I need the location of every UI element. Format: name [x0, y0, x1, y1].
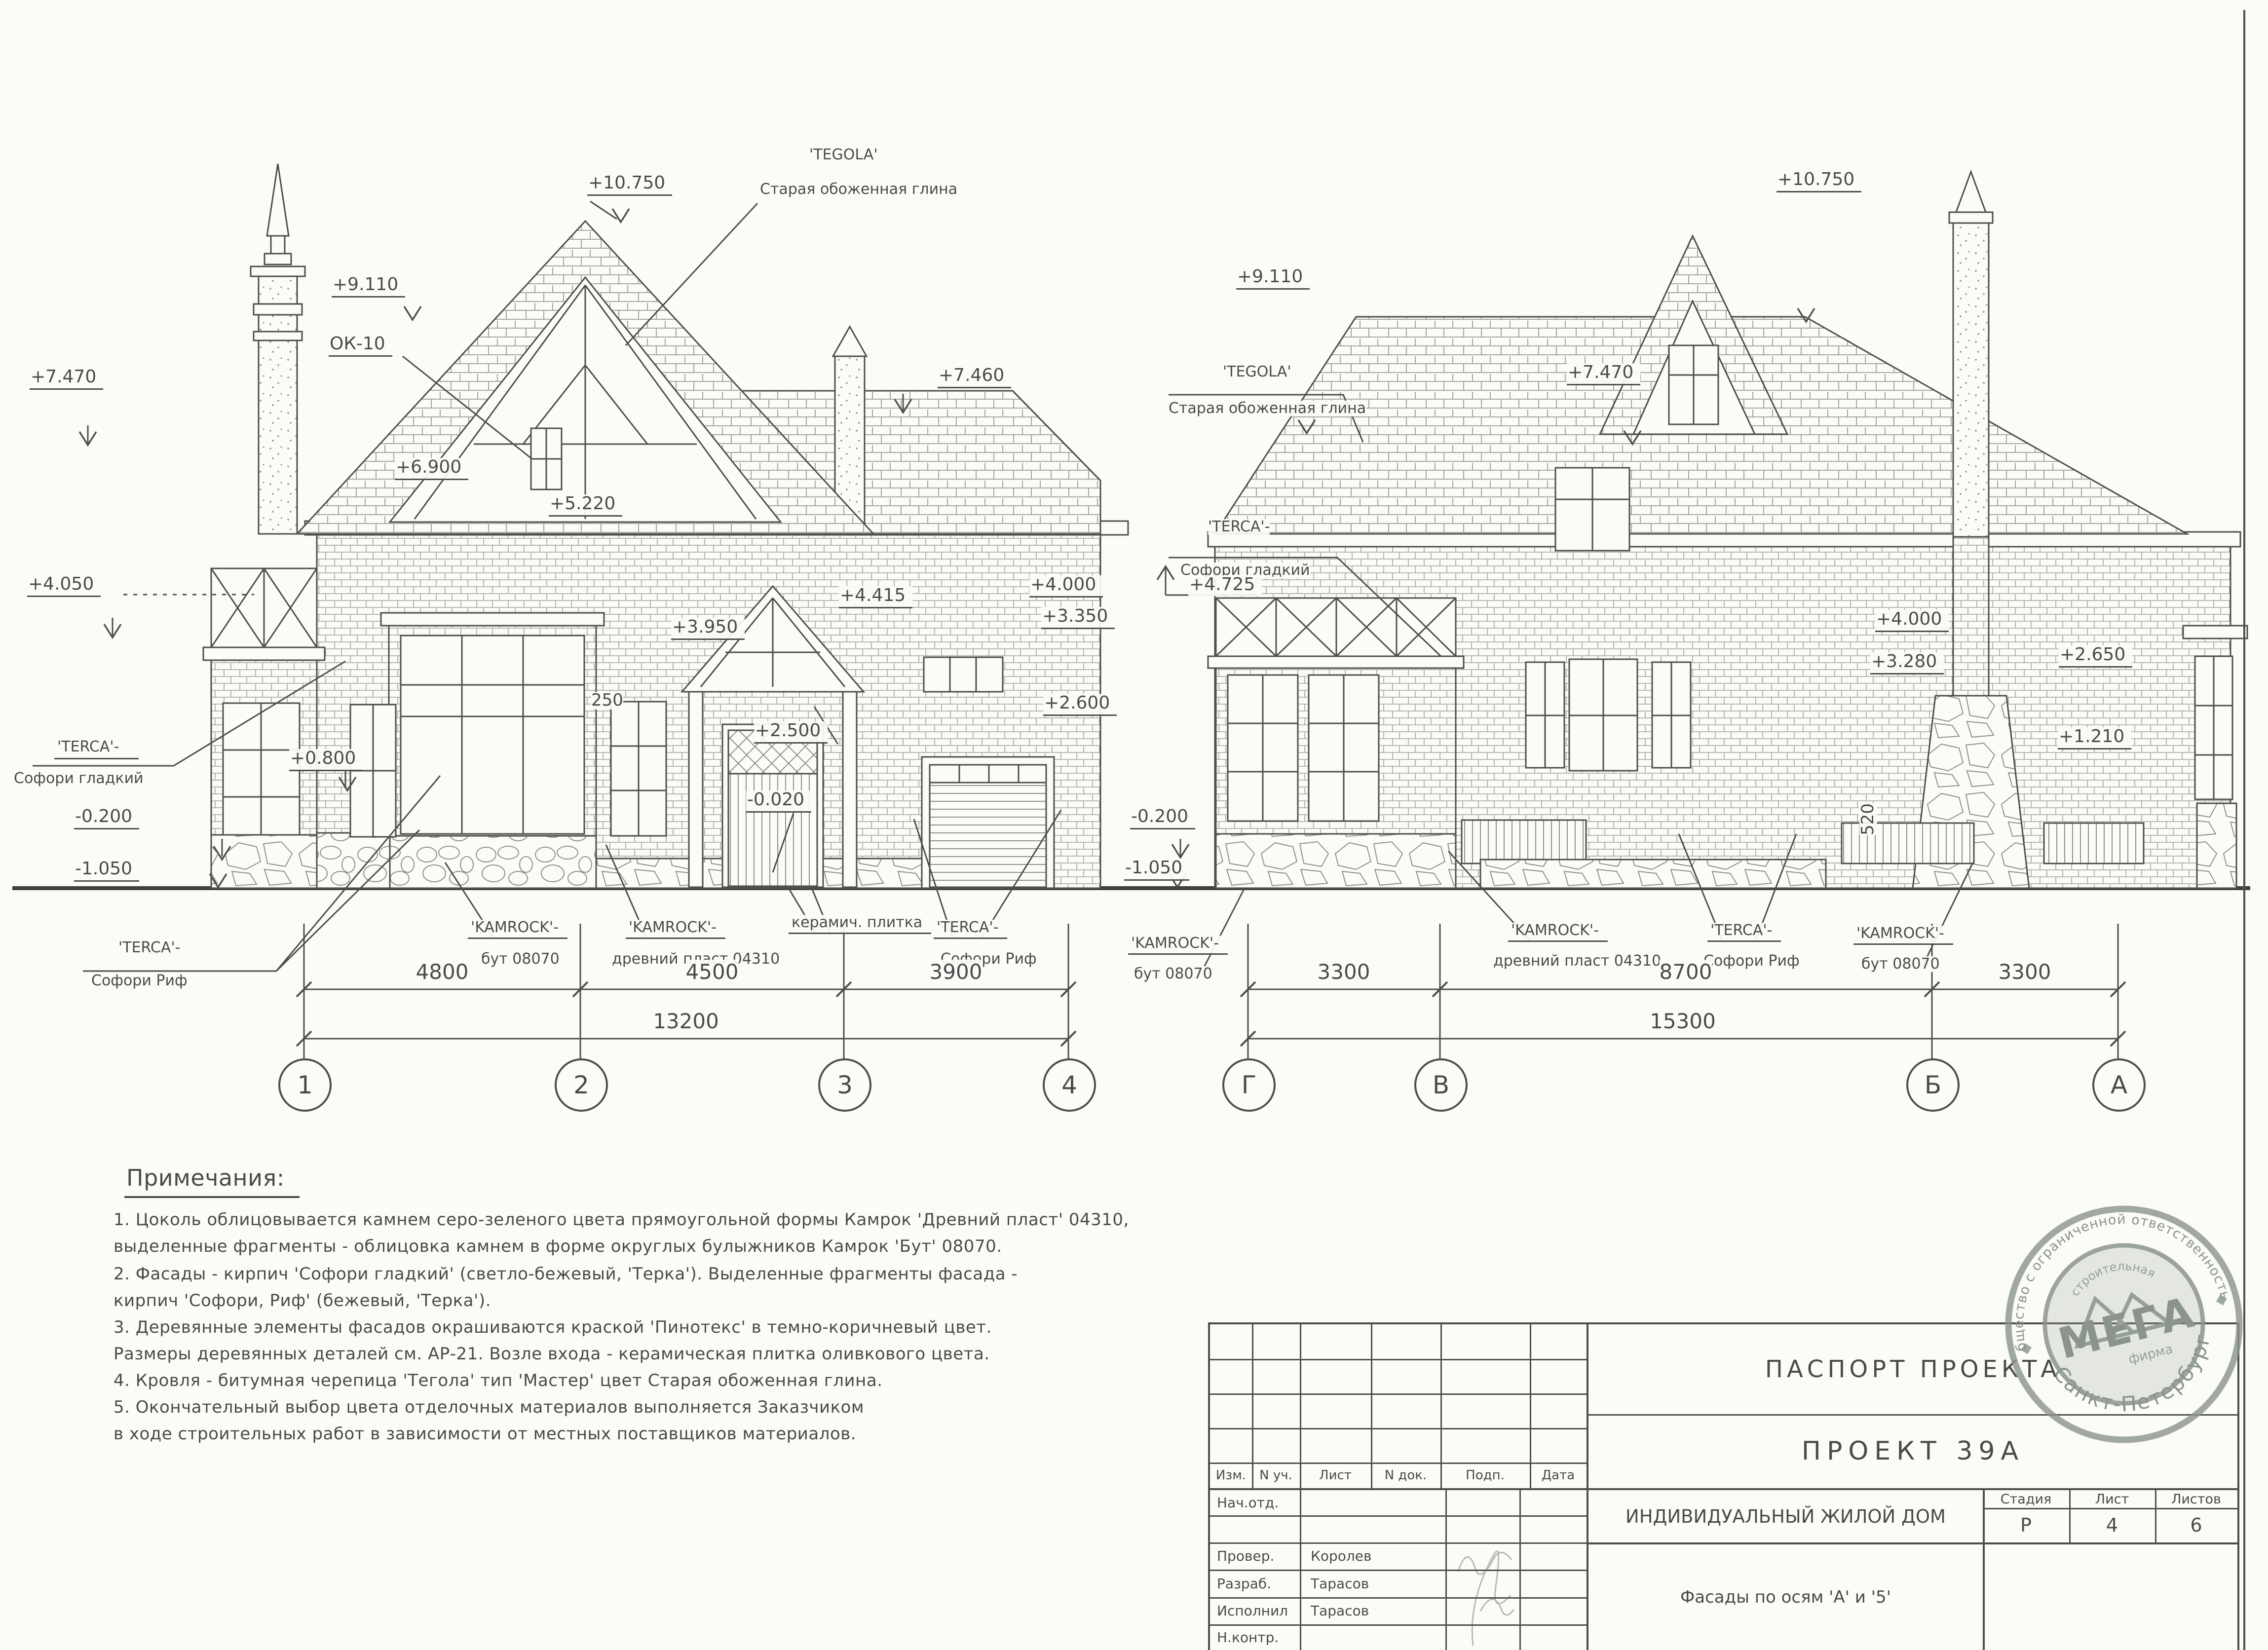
elev-mark: +7.470 [1567, 363, 1640, 385]
callout-kamrock: 'KAMROCK'- [1508, 923, 1608, 942]
elev-mark: +2.650 [2059, 645, 2132, 668]
callout-kamrock-line2: бут 08070 [1861, 956, 1940, 972]
axis-bubble: 1 [278, 1058, 332, 1112]
elev-mark: +10.750 [1777, 170, 1861, 192]
elev-mark: +9.110 [332, 275, 405, 298]
tb-sheets-label: Листов [2155, 1490, 2237, 1508]
elev-mark: -0.200 [1130, 807, 1195, 829]
tb-object: ИНДИВИДУАЛЬНЫЙ ЖИЛОЙ ДОМ [1588, 1490, 1983, 1542]
elev-mark: -1.050 [74, 860, 139, 882]
callout-ceramic-tile: керамич. плитка [789, 915, 931, 934]
elev-mark: +6.900 [395, 458, 468, 480]
note-line: 1. Цоколь облицовывается камнем серо-зел… [113, 1210, 1129, 1230]
callout-kamrock-line2: бут 08070 [481, 951, 560, 967]
elev-mark: -0.200 [74, 807, 139, 829]
note-line: 5. Окончательный выбор цвета отделочных … [113, 1397, 864, 1417]
note-line: Размеры деревянных деталей см. АР-21. Во… [113, 1344, 990, 1364]
callout-kamrock-line2: древний пласт 04310 [1493, 953, 1661, 969]
axis-bubble: А [2092, 1058, 2146, 1112]
callout-terca-line2: Софори гладкий [14, 771, 144, 787]
tb-name-tarasov: Тарасов [1304, 1570, 1452, 1597]
axis-label: Б [1925, 1071, 1941, 1099]
dim-value: 4800 [416, 960, 469, 984]
axis-label: Г [1242, 1071, 1257, 1099]
company-stamp: Общество с ограниченной ответственностью… [1980, 1180, 2268, 1468]
elev-mark: +10.750 [587, 174, 672, 196]
note-line: 4. Кровля - битумная черепица 'Тегола' т… [113, 1371, 883, 1390]
window-tag: ОК-10 [329, 335, 392, 357]
elev-mark: +1.210 [2058, 727, 2131, 750]
tb-stage-value: Р [1983, 1508, 2069, 1542]
dim-value: 3300 [1318, 960, 1370, 984]
callout-kamrock: 'KAMROCK'- [1853, 926, 1953, 945]
tb-row-nkontr: Н.контр. [1210, 1624, 1307, 1650]
tb-stage-label: Стадия [1983, 1490, 2069, 1508]
tb-h-data: Дата [1530, 1462, 1587, 1488]
axis-label: 2 [573, 1071, 589, 1099]
axis-label: 1 [297, 1071, 313, 1099]
callout-terca: 'TERCA'- [1707, 923, 1781, 942]
tb-sheet-title: Фасады по осям 'А' и '5' [1588, 1544, 1983, 1650]
callout-kamrock: 'KAMROCK'- [1128, 936, 1228, 955]
dim-total: 15300 [1650, 1009, 1716, 1033]
note-line: 3. Деревянные элементы фасадов окрашиваю… [113, 1317, 992, 1337]
dim-250: 250 [591, 692, 623, 710]
axis-bubble: Б [1906, 1058, 1960, 1112]
callout-tegola-line2: Старая обоженная глина [760, 182, 957, 197]
elev-mark: +9.110 [1236, 267, 1310, 290]
notes-title: Примечания: [124, 1164, 300, 1198]
drawing-sheet: +7.470 +4.050 'TERCA'- Софори гладкий -0… [0, 0, 2268, 1650]
elev-mark: +3.280 [1870, 652, 1944, 675]
dim-total: 13200 [653, 1009, 719, 1033]
elev-mark: +4.415 [839, 586, 912, 608]
axis-bubble: 4 [1043, 1058, 1096, 1112]
callout-kamrock: 'KAMROCK'- [626, 920, 725, 939]
callout-tegola: 'TEGOLA' [809, 147, 878, 163]
elev-mark: +7.460 [938, 366, 1011, 388]
tb-h-izm: Изм. [1210, 1462, 1252, 1488]
note-line: кирпич 'Софори, Риф' (бежевый, 'Терка'). [113, 1291, 491, 1311]
note-line: в ходе строительных работ в зависимости … [113, 1424, 856, 1444]
callout-kamrock-line2: бут 08070 [1134, 966, 1212, 982]
dim-520: 520 [1859, 803, 1877, 835]
elev-mark: +7.470 [30, 368, 103, 390]
tb-name-tarasov2: Тарасов [1304, 1597, 1452, 1624]
dim-value: 4500 [686, 960, 739, 984]
note-line: 2. Фасады - кирпич 'Софори гладкий' (све… [113, 1264, 1018, 1284]
axis-label: В [1433, 1071, 1449, 1099]
callout-terca: 'TERCA'- [1208, 519, 1270, 535]
axis-bubble: Г [1222, 1058, 1276, 1112]
elev-mark: +0.800 [289, 749, 363, 771]
elev-mark: +4.050 [27, 575, 101, 597]
tb-h-list: Лист [1300, 1462, 1371, 1488]
callout-terca: 'TERCA'- [934, 920, 1007, 939]
tb-row-ispolnil: Исполнил [1210, 1597, 1307, 1624]
elev-mark: +4.000 [1029, 575, 1103, 598]
axis-bubble: В [1414, 1058, 1468, 1112]
tb-row-nachotd: Нач.отд. [1210, 1490, 1307, 1515]
tb-row-prover: Провер. [1210, 1542, 1307, 1570]
tb-name-korolev: Королев [1304, 1542, 1452, 1570]
tb-row-razrab: Разраб. [1210, 1570, 1307, 1597]
dim-value: 8700 [1660, 960, 1712, 984]
tb-sheets-value: 6 [2155, 1508, 2237, 1542]
axis-bubble: 2 [555, 1058, 608, 1112]
tb-h-nuch: N уч. [1252, 1462, 1300, 1488]
callout-tegola: 'TEGOLA' [1223, 364, 1291, 380]
elev-mark: +5.220 [549, 494, 622, 517]
dim-value: 3900 [930, 960, 983, 984]
elev-mark: +4.725 [1188, 575, 1262, 596]
elev-mark: +4.000 [1875, 610, 1949, 632]
tb-sheet-label: Лист [2069, 1490, 2155, 1508]
elev-mark: +3.350 [1041, 607, 1115, 629]
callout-terca-rif-line2: Софори Риф [91, 973, 188, 989]
axis-bubble: 3 [818, 1058, 871, 1112]
axis-label: А [2111, 1071, 2127, 1099]
axis-label: 3 [837, 1071, 853, 1099]
elev-mark: -1.050 [1124, 859, 1189, 881]
callout-terca: 'TERCA'- [54, 739, 139, 759]
callout-tegola-line2: Старая обоженная глина [1169, 401, 1366, 416]
elev-mark: +3.950 [671, 618, 745, 640]
dim-value: 3300 [1999, 960, 2051, 984]
tb-sheet-value: 4 [2069, 1508, 2155, 1542]
elev-mark: +2.500 [754, 721, 828, 744]
callout-terca-line2: Софори Риф [1703, 953, 1800, 969]
elev-mark: -0.020 [746, 790, 811, 813]
elev-mark: +2.600 [1043, 694, 1117, 716]
note-line: выделенные фрагменты - облицовка камнем … [113, 1237, 1002, 1256]
axis-label: 4 [1061, 1071, 1077, 1099]
callout-kamrock: 'KAMROCK'- [468, 920, 567, 939]
callout-terca-rif: 'TERCA'- [118, 940, 180, 956]
tb-h-podp: Подп. [1440, 1462, 1530, 1488]
tb-h-ndok: N док. [1371, 1462, 1440, 1488]
